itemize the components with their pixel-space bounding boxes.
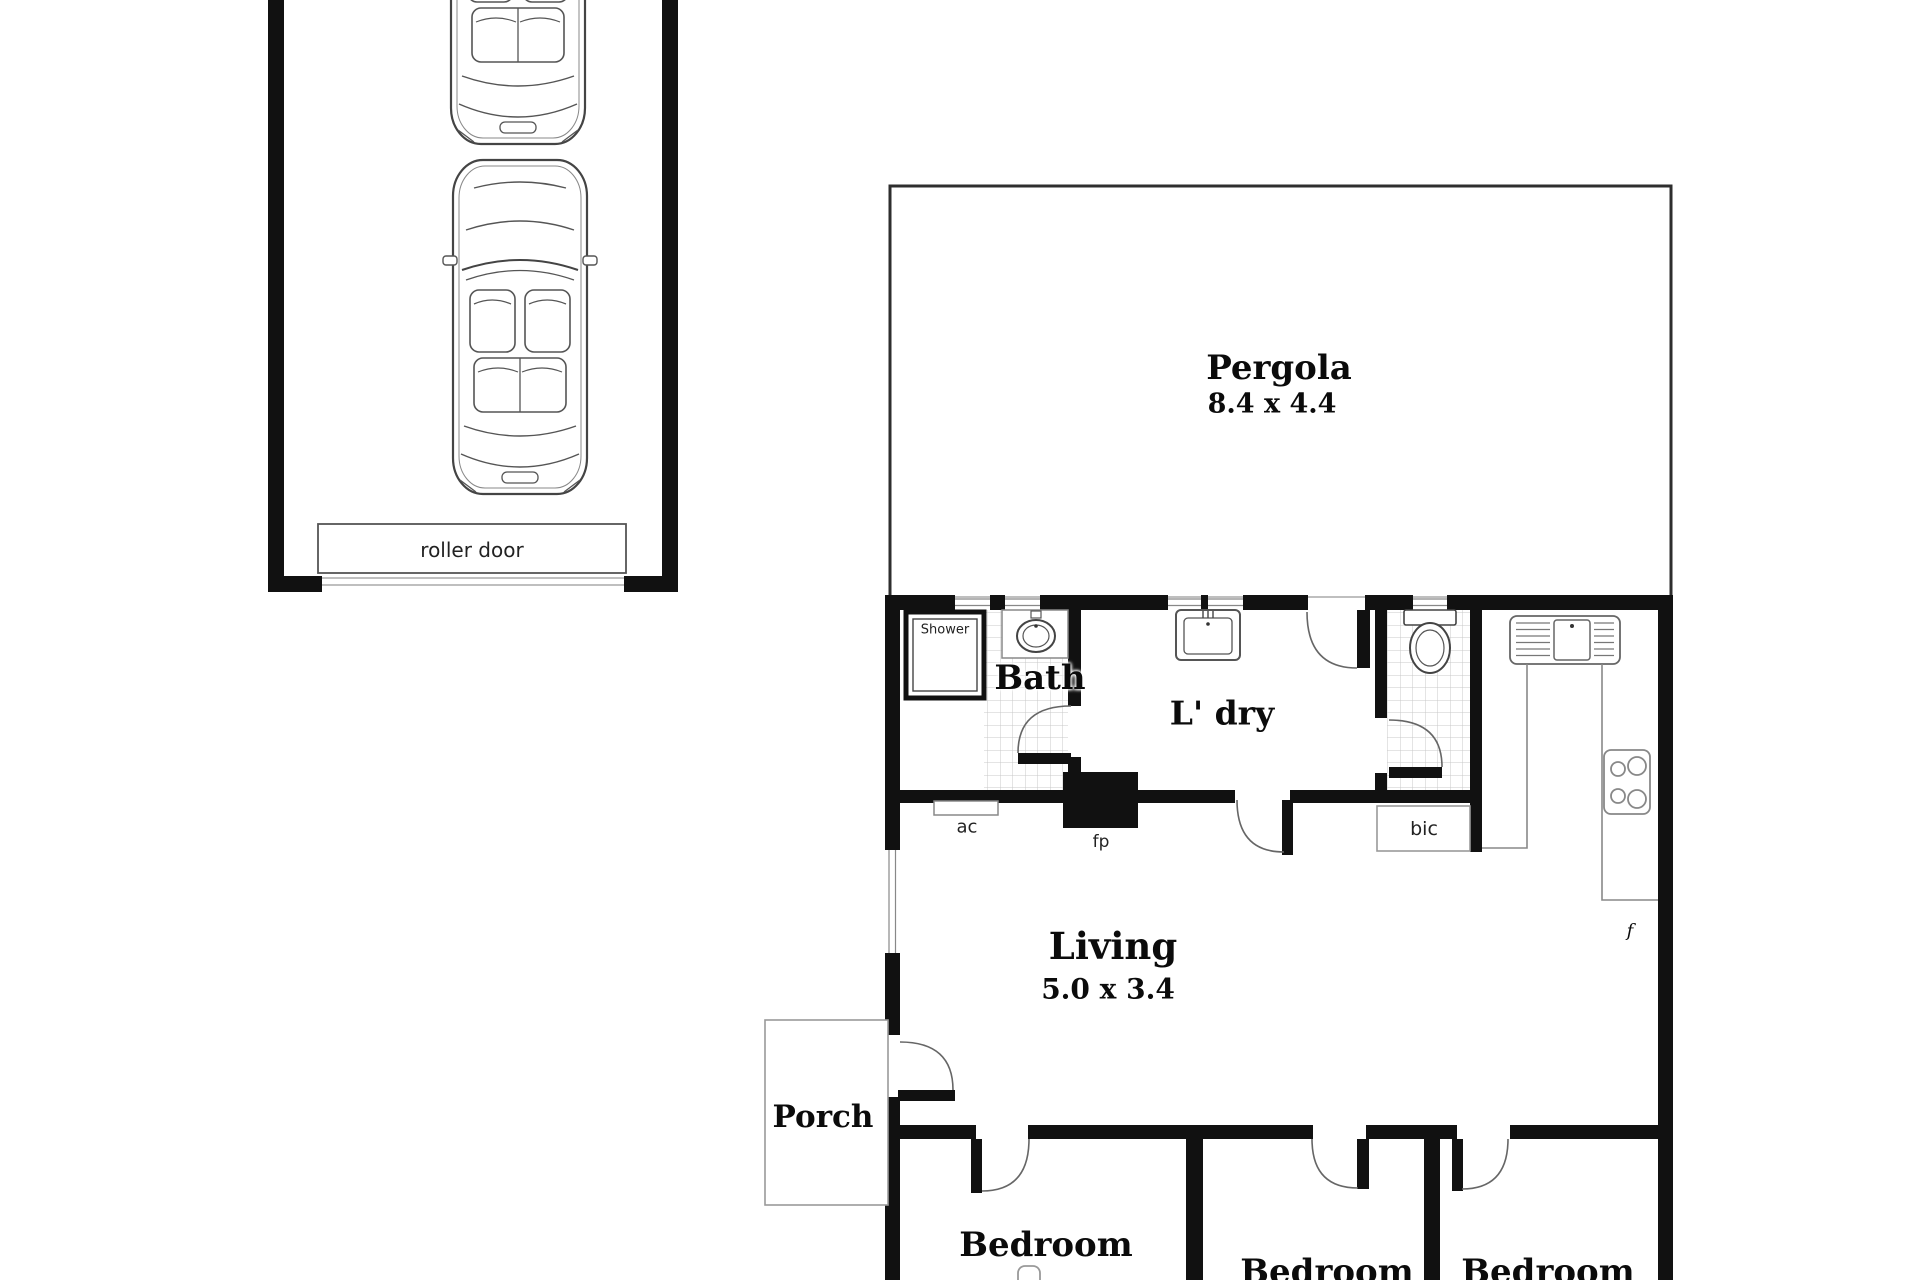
bedroom-wall: [1366, 1125, 1457, 1139]
bedroom2-door-arc: [1312, 1139, 1358, 1188]
living-kitchen-door-arc: [1237, 800, 1284, 852]
fridge-label: f: [1627, 921, 1634, 942]
ac-label: ac: [957, 817, 978, 838]
laundry-drain: [1206, 622, 1210, 626]
bedroom-wall: [1028, 1125, 1313, 1139]
hall-wall: [1290, 790, 1470, 803]
bath-window: [955, 599, 990, 606]
top-wall: [1040, 595, 1168, 610]
bedroom-wall: [885, 1125, 976, 1139]
garage-bottom-wall-left: [268, 576, 322, 592]
kitchen-bench-edge: [1482, 664, 1527, 848]
floorplan-canvas: Pergola 8.4 x 4.4 Bath L' dry Living 5.0…: [0, 0, 1920, 1280]
pergola-label: Pergola: [1206, 348, 1352, 388]
living-dims: 5.0 x 3.4: [1041, 973, 1175, 1006]
fp-label: fp: [1093, 832, 1110, 852]
living-kitchen-door-leaf: [1282, 800, 1293, 855]
roller-door-label: roller door: [420, 538, 523, 562]
laundry-wc-wall: [1375, 773, 1387, 790]
right-wall: [1658, 595, 1673, 1280]
bedroom1-object: [1018, 1266, 1040, 1280]
garage-left-wall: [268, 0, 284, 592]
bedroom1-door-leaf: [971, 1139, 982, 1193]
bedroom2-label: Bedroom: [1240, 1252, 1413, 1280]
top-wall: [1447, 595, 1673, 610]
garage-bottom-wall-right: [624, 576, 678, 592]
window-mullion: [1201, 595, 1208, 610]
laundry-label: L' dry: [1170, 694, 1274, 733]
bedroom1-door-arc: [982, 1139, 1029, 1191]
floorplan-drawing: [0, 0, 1920, 1280]
bedroom3-label: Bedroom: [1461, 1252, 1634, 1280]
living-label: Living: [1049, 924, 1177, 968]
front-door-leaf: [898, 1090, 955, 1101]
shower-label: Shower: [921, 623, 969, 638]
wc-window: [1413, 599, 1447, 606]
laundry-pergola-door-arc: [1307, 612, 1357, 668]
car-icon: [443, 160, 597, 494]
car-icon: [441, 0, 595, 144]
left-wall: [885, 595, 900, 850]
bedroom1-label: Bedroom: [959, 1225, 1132, 1265]
bedroom-divider-wall: [1424, 1125, 1440, 1280]
laundry-window: [1168, 599, 1201, 606]
wc-kitchen-wall: [1470, 610, 1482, 852]
garage: [268, 0, 678, 592]
bic-label: bic: [1410, 818, 1438, 840]
top-wall: [1365, 595, 1413, 610]
basin-drain: [1034, 624, 1038, 628]
garage-right-wall: [662, 0, 678, 592]
laundry-wc-wall: [1375, 610, 1387, 718]
bath-label: Bath: [994, 658, 1085, 698]
ac-unit-icon: [934, 801, 998, 815]
bedroom-divider-wall: [1186, 1125, 1203, 1280]
top-wall: [1243, 595, 1308, 610]
pergola-dims: 8.4 x 4.4: [1208, 389, 1337, 420]
laundry-pergola-door-leaf: [1357, 610, 1370, 668]
bedroom3-door-leaf: [1452, 1139, 1463, 1191]
basin-tap-icon: [1031, 611, 1041, 618]
living-window: [889, 850, 896, 953]
front-door-arc: [900, 1042, 953, 1090]
bedroom3-door-arc: [1462, 1139, 1508, 1189]
bedroom2-door-leaf: [1357, 1139, 1369, 1189]
bedroom-wall: [1510, 1125, 1673, 1139]
sink-tap-dot: [1570, 624, 1574, 628]
porch-label: Porch: [773, 1099, 874, 1135]
window-mullion: [990, 595, 1005, 610]
bath-door-leaf: [1018, 753, 1071, 764]
laundry-window: [1208, 599, 1243, 606]
wc-door-leaf: [1389, 767, 1442, 778]
bath-window: [1005, 599, 1040, 606]
